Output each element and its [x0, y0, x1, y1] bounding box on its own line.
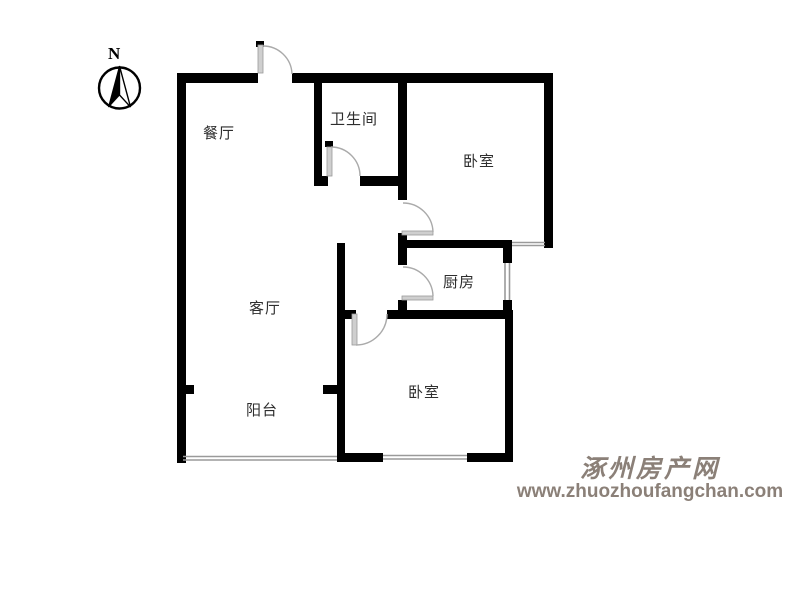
- room-label-bathroom: 卫生间: [330, 112, 378, 128]
- bathroom-door-frame-cap: [325, 141, 333, 147]
- bathroom-door-arc: [331, 147, 360, 176]
- wall-central-top: [398, 83, 407, 200]
- entry-door-leaf: [258, 45, 263, 73]
- floor-plan-drawing: [0, 0, 800, 600]
- wall-bedroom-bottom-right: [505, 310, 513, 462]
- watermark-site-url: www.zhuozhoufangchan.com: [505, 482, 795, 502]
- entry-door-arc: [263, 46, 292, 74]
- bedroom-bottom-door-leaf: [352, 314, 357, 345]
- compass-needle-left: [109, 66, 120, 107]
- kitchen-door-arc: [403, 267, 433, 296]
- compass-north-label: N: [108, 44, 120, 64]
- kitchen-door-leaf: [402, 296, 433, 300]
- bathroom-door-leaf: [327, 147, 332, 176]
- wall-living-divider: [337, 243, 345, 462]
- room-label-dining: 餐厅: [203, 126, 235, 142]
- bedroom-bottom-door-arc: [356, 314, 387, 345]
- wall-left: [177, 73, 186, 463]
- wall-bathroom-left: [314, 83, 322, 186]
- watermark: 涿州房产网 www.zhuozhoufangchan.com: [505, 456, 795, 502]
- wall-bathroom-bottom-stub: [314, 176, 328, 186]
- watermark-site-name: 涿州房产网: [505, 456, 795, 482]
- room-label-balcony: 阳台: [246, 403, 278, 419]
- bedroom-top-door-leaf: [402, 231, 433, 235]
- bedroom-top-door-arc: [403, 203, 433, 232]
- room-label-bedroom-bottom: 卧室: [408, 385, 440, 401]
- north-compass: [99, 66, 140, 109]
- wall-top-right: [292, 73, 553, 83]
- compass-needle-right: [120, 66, 131, 107]
- wall-kitchen-top: [398, 240, 508, 248]
- wall-central-mid: [398, 233, 407, 265]
- wall-right-bedroom-top: [544, 73, 553, 248]
- room-label-bedroom-top: 卧室: [463, 154, 495, 170]
- wall-balcony-stub-right: [323, 385, 337, 394]
- wall-bedroom-bottom-bottom-left: [337, 453, 383, 462]
- wall-bedroom-bottom-top-right: [387, 310, 513, 319]
- room-label-living: 客厅: [249, 301, 281, 317]
- floor-plan: N 餐厅 卫生间 卧室 厨房 客厅 阳台 卧室 涿州房产网 www.zhuozh…: [0, 0, 800, 600]
- wall-balcony-stub-left: [186, 385, 194, 394]
- wall-kitchen-right-top: [503, 240, 512, 263]
- wall-top-left: [177, 73, 258, 83]
- room-label-kitchen: 厨房: [443, 275, 475, 291]
